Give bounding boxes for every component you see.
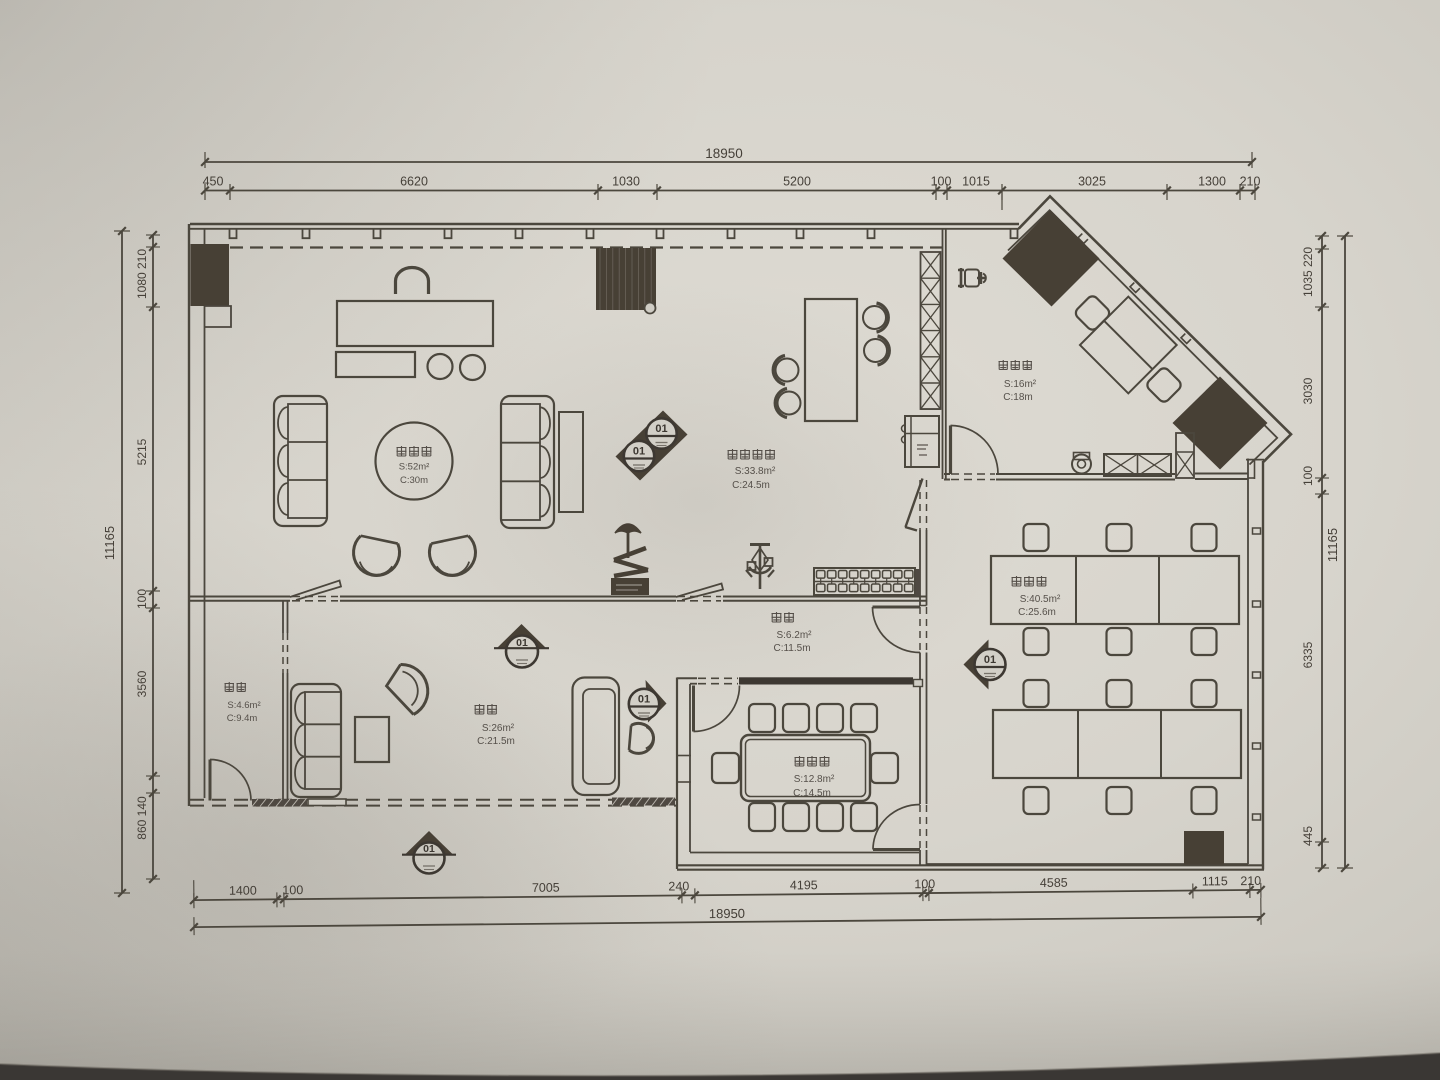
svg-text:5215: 5215 — [135, 438, 149, 465]
svg-text:1030: 1030 — [612, 175, 640, 189]
svg-text:01: 01 — [638, 694, 650, 706]
svg-text:S:12.8m²: S:12.8m² — [794, 774, 835, 785]
svg-text:S:26m²: S:26m² — [482, 723, 515, 734]
svg-text:4195: 4195 — [790, 878, 818, 892]
svg-text:01: 01 — [633, 446, 645, 458]
svg-text:100: 100 — [1301, 466, 1315, 486]
svg-text:240: 240 — [668, 879, 689, 893]
svg-text:1015: 1015 — [962, 175, 990, 189]
svg-text:445: 445 — [1301, 826, 1315, 846]
svg-text:C:25.6m: C:25.6m — [1018, 607, 1056, 618]
svg-text:1080 210: 1080 210 — [135, 249, 149, 299]
svg-text:01: 01 — [423, 843, 435, 855]
svg-text:C:11.5m: C:11.5m — [773, 643, 810, 654]
svg-text:S:6.2m²: S:6.2m² — [776, 630, 812, 641]
svg-text:210: 210 — [1240, 175, 1261, 189]
svg-text:1400: 1400 — [229, 884, 257, 898]
svg-text:5200: 5200 — [783, 175, 811, 189]
svg-text:C:18m: C:18m — [1003, 392, 1032, 403]
svg-text:18950: 18950 — [705, 146, 743, 161]
svg-text:3560: 3560 — [135, 670, 149, 697]
svg-text:C:9.4m: C:9.4m — [227, 713, 258, 724]
svg-text:100: 100 — [135, 589, 149, 609]
svg-text:S:52m²: S:52m² — [399, 462, 430, 473]
svg-text:18950: 18950 — [709, 906, 745, 921]
svg-text:1035 220: 1035 220 — [1301, 247, 1315, 297]
svg-text:100: 100 — [914, 877, 935, 891]
svg-text:3030: 3030 — [1301, 377, 1315, 404]
svg-text:01: 01 — [516, 637, 528, 649]
svg-text:210: 210 — [1240, 874, 1261, 888]
svg-text:11165: 11165 — [102, 526, 117, 560]
svg-text:S:4.6m²: S:4.6m² — [227, 700, 260, 711]
svg-text:C:21.5m: C:21.5m — [477, 736, 515, 747]
svg-text:1115: 1115 — [1202, 874, 1228, 888]
svg-text:01: 01 — [655, 423, 667, 435]
svg-text:6335: 6335 — [1301, 641, 1315, 668]
svg-text:01: 01 — [984, 654, 996, 666]
svg-text:100: 100 — [282, 883, 303, 897]
svg-text:7005: 7005 — [532, 881, 560, 895]
svg-text:S:16m²: S:16m² — [1004, 379, 1037, 390]
svg-text:S:33.8m²: S:33.8m² — [735, 466, 776, 477]
svg-text:1300: 1300 — [1198, 175, 1226, 189]
svg-text:S:40.5m²: S:40.5m² — [1020, 594, 1061, 605]
svg-text:450: 450 — [203, 175, 224, 189]
svg-text:3025: 3025 — [1078, 175, 1106, 189]
svg-text:11165: 11165 — [1325, 528, 1340, 562]
svg-text:C:30m: C:30m — [400, 475, 428, 486]
svg-text:6620: 6620 — [400, 175, 428, 189]
svg-text:860 140: 860 140 — [135, 796, 149, 840]
svg-text:4585: 4585 — [1040, 876, 1068, 890]
svg-text:100: 100 — [931, 175, 952, 189]
svg-text:C:24.5m: C:24.5m — [732, 480, 770, 491]
svg-text:C:14.5m: C:14.5m — [793, 788, 831, 799]
